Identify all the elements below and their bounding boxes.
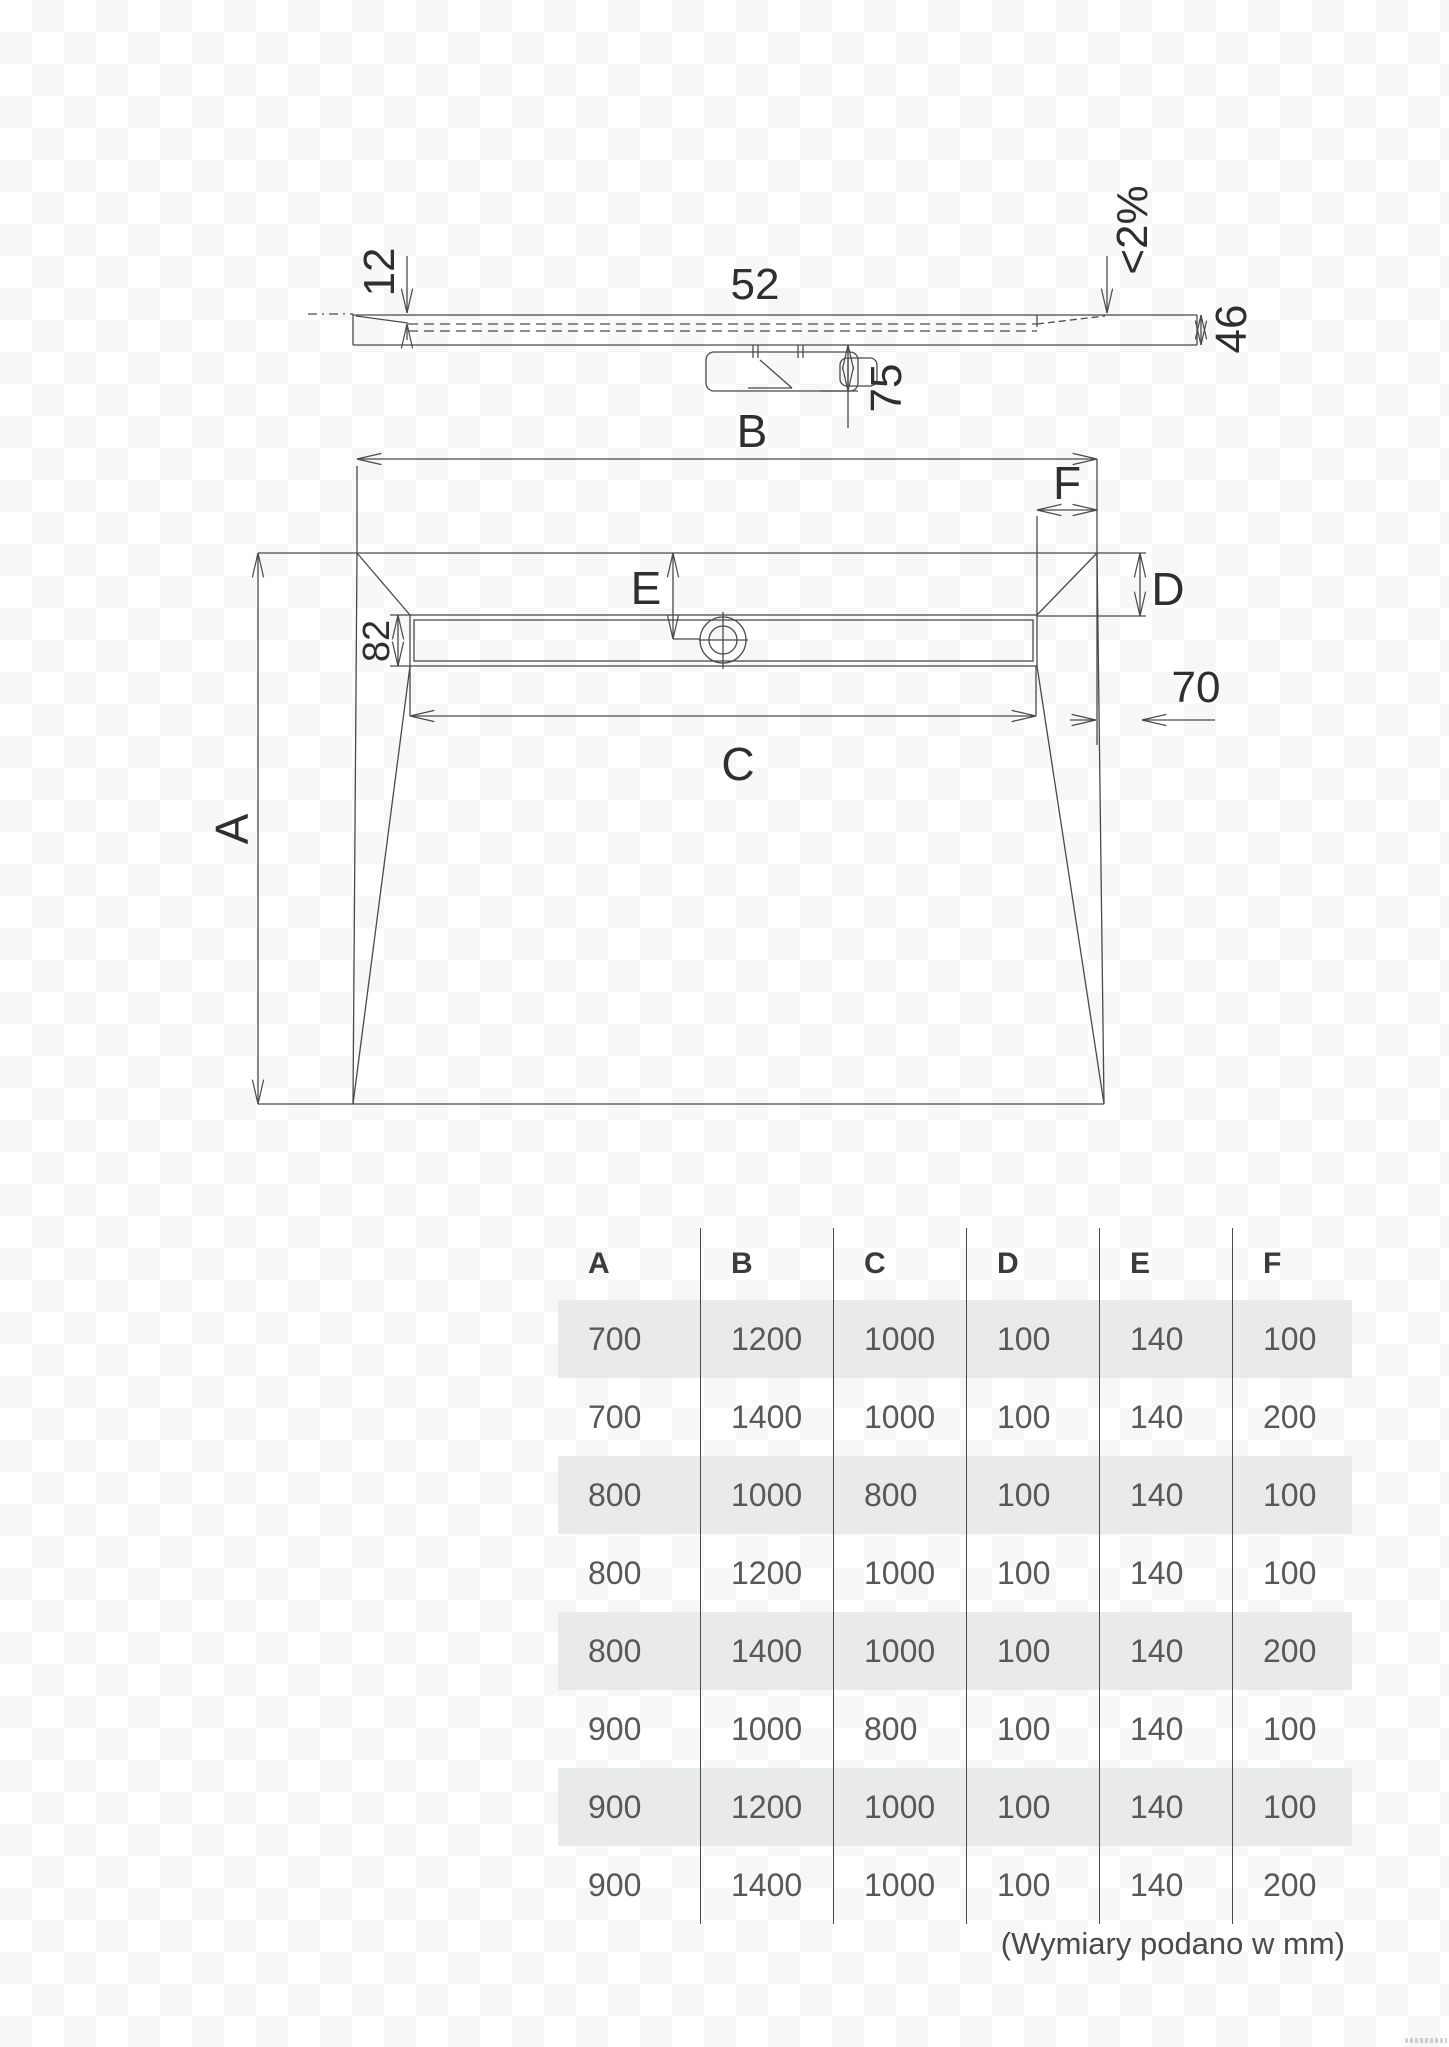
dim-52-label: 52 <box>731 260 780 309</box>
table-cell: 100 <box>1232 1300 1352 1378</box>
table-row: 700 1400 1000 100 140 200 <box>558 1378 1352 1456</box>
table-row: 900 1200 1000 100 140 100 <box>558 1768 1352 1846</box>
table-header-D: D <box>966 1228 1099 1300</box>
table-cell: 700 <box>558 1378 700 1456</box>
table-cell: 200 <box>1232 1846 1352 1924</box>
table-header-row: A B C D E F <box>558 1228 1352 1300</box>
table-cell: 1200 <box>700 1534 833 1612</box>
table-cell: 100 <box>1232 1534 1352 1612</box>
table-cell: 100 <box>966 1768 1099 1846</box>
plan-right-edge <box>1097 553 1104 1104</box>
label-E: E <box>631 562 662 614</box>
table-cell: 1000 <box>833 1612 966 1690</box>
table-header-C: C <box>833 1228 966 1300</box>
label-A: A <box>206 813 258 844</box>
table-cell: 100 <box>966 1456 1099 1534</box>
label-70: 70 <box>1172 663 1221 712</box>
dim-12-label: 12 <box>355 248 404 297</box>
table-cell: 1400 <box>700 1846 833 1924</box>
table-cell: 100 <box>966 1690 1099 1768</box>
table-cell: 100 <box>966 1534 1099 1612</box>
crease-top-right <box>1037 553 1097 615</box>
crease-bottom-left <box>353 666 410 1104</box>
label-D: D <box>1151 563 1184 615</box>
table-cell: 140 <box>1099 1690 1232 1768</box>
units-note: (Wymiary podano w mm) <box>1001 1926 1345 1962</box>
table-row: 700 1200 1000 100 140 100 <box>558 1300 1352 1378</box>
label-82: 82 <box>356 620 398 662</box>
table-cell: 1200 <box>700 1768 833 1846</box>
table-cell: 1000 <box>833 1300 966 1378</box>
table-cell: 900 <box>558 1846 700 1924</box>
dim-46-label: 46 <box>1207 305 1256 354</box>
table-cell: 800 <box>558 1534 700 1612</box>
label-F: F <box>1053 457 1081 509</box>
table-cell: 900 <box>558 1690 700 1768</box>
table-header-F: F <box>1232 1228 1352 1300</box>
size-table: A B C D E F 700 1200 1000 100 140 100 70… <box>558 1228 1352 1924</box>
table-cell: 800 <box>558 1612 700 1690</box>
crease-top-left <box>357 553 410 615</box>
table-cell: 140 <box>1099 1300 1232 1378</box>
table-cell: 1400 <box>700 1378 833 1456</box>
watermark <box>1405 2038 1447 2043</box>
label-C: C <box>721 738 754 790</box>
table-cell: 800 <box>833 1690 966 1768</box>
table-cell: 100 <box>966 1612 1099 1690</box>
table-cell: 100 <box>966 1300 1099 1378</box>
dim-75-label: 75 <box>862 364 911 413</box>
table-cell: 140 <box>1099 1378 1232 1456</box>
table-cell: 100 <box>966 1846 1099 1924</box>
table-row: 800 1000 800 100 140 100 <box>558 1456 1352 1534</box>
section-right-slope <box>1037 316 1105 324</box>
page: { "drawing": { "section_labels": { "rece… <box>0 0 1449 2047</box>
table-header-E: E <box>1099 1228 1232 1300</box>
table-cell: 100 <box>1232 1456 1352 1534</box>
table-cell: 100 <box>1232 1690 1352 1768</box>
table-cell: 900 <box>558 1768 700 1846</box>
label-B: B <box>737 405 768 457</box>
table-cell: 800 <box>558 1456 700 1534</box>
table-cell: 200 <box>1232 1612 1352 1690</box>
table-cell: 200 <box>1232 1378 1352 1456</box>
table-cell: 1000 <box>700 1690 833 1768</box>
table-cell: 1000 <box>833 1378 966 1456</box>
table-cell: 140 <box>1099 1612 1232 1690</box>
table-cell: 140 <box>1099 1534 1232 1612</box>
table-cell: 140 <box>1099 1768 1232 1846</box>
table-cell: 1000 <box>700 1456 833 1534</box>
dim-slope-label: <2% <box>1108 185 1157 274</box>
table-row: 800 1200 1000 100 140 100 <box>558 1534 1352 1612</box>
table-cell: 800 <box>833 1456 966 1534</box>
table-cell: 700 <box>558 1300 700 1378</box>
table-cell: 1200 <box>700 1300 833 1378</box>
table-cell: 100 <box>966 1378 1099 1456</box>
table-row: 900 1000 800 100 140 100 <box>558 1690 1352 1768</box>
crease-bottom-right <box>1037 666 1104 1104</box>
table-cell: 1000 <box>833 1846 966 1924</box>
table-cell: 100 <box>1232 1768 1352 1846</box>
table-header-B: B <box>700 1228 833 1300</box>
table-cell: 140 <box>1099 1456 1232 1534</box>
drain-trap <box>706 345 877 391</box>
table-header-A: A <box>558 1228 700 1300</box>
section-left-slope <box>356 316 408 323</box>
table-row: 800 1400 1000 100 140 200 <box>558 1612 1352 1690</box>
table-cell: 1000 <box>833 1534 966 1612</box>
table-cell: 1400 <box>700 1612 833 1690</box>
table-row: 900 1400 1000 100 140 200 <box>558 1846 1352 1924</box>
table-cell: 140 <box>1099 1846 1232 1924</box>
table-cell: 1000 <box>833 1768 966 1846</box>
